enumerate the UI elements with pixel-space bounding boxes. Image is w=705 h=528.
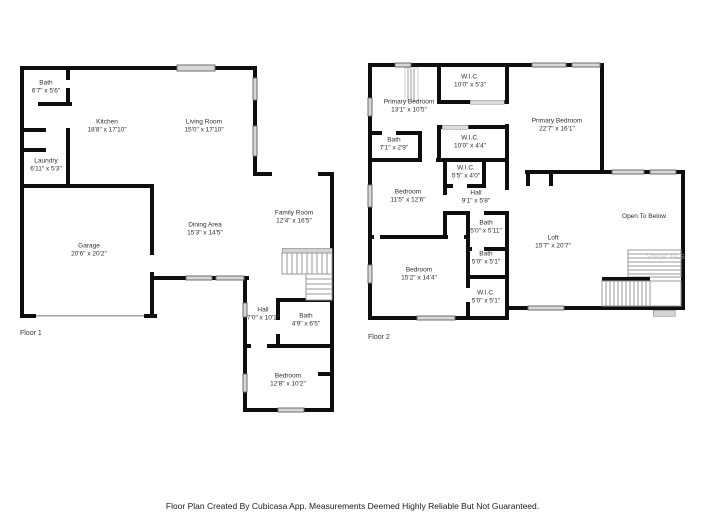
floor2-closet xyxy=(405,68,418,101)
floor1-room-garage-label: Garage 20'6" x 20'2" xyxy=(71,243,107,260)
floor1-room-dining-area-label: Dining Area 15'3" x 14'5" xyxy=(187,222,223,239)
floor2-tag: Floor 2 xyxy=(368,334,390,341)
floor1-room-laundry-label: Laundry 6'11" x 5'3" xyxy=(30,158,62,175)
floorplan-canvas xyxy=(0,0,705,528)
floor1-room-bedroom-label: Bedroom 12'8" x 10'2" xyxy=(270,373,306,390)
floor2-room-wic1-label: W.I.C. 10'0" x 5'3" xyxy=(454,74,486,91)
floor1-room-family-room-label: Family Room 12'4" x 16'5" xyxy=(275,210,313,227)
floor2-room-primary-bedroom-right-label: Primary Bedroom 22'7" x 16'1" xyxy=(532,118,583,135)
floor1-staircase xyxy=(282,248,332,300)
floor2-room-wic2-label: W.I.C. 10'0" x 4'4" xyxy=(454,135,486,152)
floor2-room-open-to-below-label: Open To Below xyxy=(622,213,666,221)
floor2-room-loft-label: Loft 15'7" x 20'7" xyxy=(535,235,571,252)
floor2-room-bath1-label: Bath 7'1" x 2'9" xyxy=(380,137,408,154)
floor2-room-bedroom2-label: Bedroom 15'2" x 14'4" xyxy=(401,267,437,284)
floor2-room-bath2-label: Bath 5'0" x 5'11" xyxy=(470,220,502,237)
floor2-room-bath3-label: Bath 5'0" x 5'1" xyxy=(472,251,500,268)
floor2-room-hall-label: Hall 9'1" x 5'8" xyxy=(462,190,490,207)
floor1-room-bath-label: Bath 6'7" x 5'6" xyxy=(32,80,60,97)
floor1-room-hall-label: Hall 7'0" x 10'1" xyxy=(247,307,279,324)
floor1-plan xyxy=(20,65,334,412)
floor2-room-bedroom1-label: Bedroom 11'5" x 12'6" xyxy=(390,189,425,206)
floor1-tag: Floor 1 xyxy=(20,330,42,337)
floor2-room-wic3-label: W.I.C. 5'5" x 4'0" xyxy=(452,165,480,182)
floor1-room-kitchen-label: Kitchen 18'8" x 17'10" xyxy=(87,119,126,136)
caption-text: Floor Plan Created By Cubicasa App. Meas… xyxy=(0,501,705,511)
floor1-room-living-room-label: Living Room 15'0" x 17'10" xyxy=(184,119,223,136)
mls-watermark: Stellar MLS xyxy=(646,252,685,261)
floor2-room-primary-bedroom-left-label: Primary Bedroom 13'1" x 10'5" xyxy=(384,99,435,116)
floor1-room-bath2-label: Bath 4'9" x 6'5" xyxy=(292,313,320,330)
floor2-room-wic4-label: W.I.C. 5'0" x 5'1" xyxy=(472,290,500,307)
